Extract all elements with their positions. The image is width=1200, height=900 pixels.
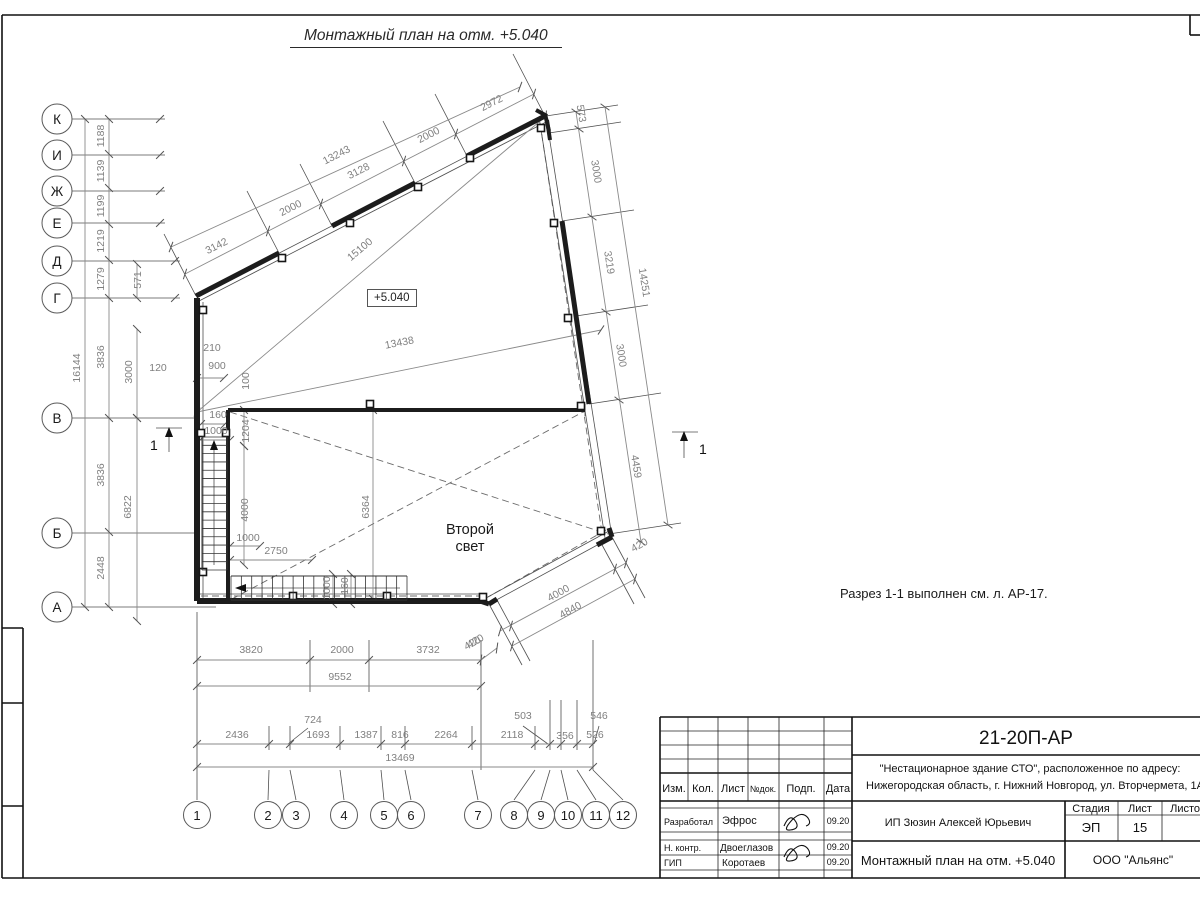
title-block-text: 15 xyxy=(1133,820,1147,835)
column-marker xyxy=(565,315,572,322)
dimension-label: 2000 xyxy=(278,198,304,219)
column-marker xyxy=(415,184,422,191)
dimension-label: 160 xyxy=(339,577,351,595)
center-dashed-line xyxy=(230,412,608,534)
dimension-label: 1000 xyxy=(204,425,228,437)
room-label: Второй свет xyxy=(430,522,510,556)
axis-bubble-number-label: 6 xyxy=(407,808,414,823)
dimension-line xyxy=(197,116,546,412)
title-block-text: Подп. xyxy=(786,783,815,795)
title-block-text: 09.20 xyxy=(827,857,850,867)
dimension-label: 3000 xyxy=(123,360,135,384)
thin-line xyxy=(268,770,269,800)
axis-bubble-letter-label: В xyxy=(52,411,61,426)
title-block-text: 09.20 xyxy=(827,816,850,826)
column-marker xyxy=(467,155,474,162)
dimension-label: 1000 xyxy=(236,532,260,544)
title-block-text: "Нестационарное здание СТО", расположенн… xyxy=(880,763,1181,775)
dimension-label: 2000 xyxy=(416,125,442,146)
title-block-text: Эфрос xyxy=(722,815,757,827)
thin-line xyxy=(523,726,548,744)
dimension-label: 1279 xyxy=(95,267,107,291)
dimension-label: 4840 xyxy=(557,599,583,621)
dim-tick xyxy=(518,82,522,92)
thin-line xyxy=(288,728,308,744)
thin-line xyxy=(609,523,681,534)
dimension-label: 15100 xyxy=(345,236,375,264)
dim-tick xyxy=(633,574,636,585)
arrowhead xyxy=(235,584,246,592)
dimension-label: 2264 xyxy=(434,729,458,741)
signature-scribble xyxy=(784,845,810,861)
title-block-text: Н. контр. xyxy=(664,843,701,853)
title-block-text: Нижегородская область, г. Нижний Новгоро… xyxy=(866,780,1200,792)
column-marker xyxy=(384,593,391,600)
title-block-text: Лист xyxy=(1128,803,1152,815)
dimension-label: 6822 xyxy=(122,495,134,519)
section-mark-label-left: 1 xyxy=(150,437,158,453)
column-marker xyxy=(578,403,585,410)
title-block-text: Разработал xyxy=(664,817,713,827)
wall-segment xyxy=(332,183,415,226)
dimension-label: 1204 xyxy=(240,419,252,443)
title-block-text: Лист xyxy=(721,783,745,795)
dimension-label: 816 xyxy=(391,729,409,741)
column-marker xyxy=(551,220,558,227)
dimension-label: 14251 xyxy=(636,267,652,298)
thin-line xyxy=(497,600,530,661)
axis-bubble-number-label: 8 xyxy=(510,808,517,823)
dimension-label: 3732 xyxy=(416,644,440,656)
arrowhead xyxy=(165,427,173,437)
dimension-label: 2750 xyxy=(264,545,288,557)
dimension-label: 9552 xyxy=(328,671,352,683)
dim-tick xyxy=(624,558,627,569)
axis-bubble-number-label: 11 xyxy=(589,808,603,823)
title-block-text: Дата xyxy=(826,783,851,795)
wall-segment xyxy=(489,599,497,604)
thin-line xyxy=(383,121,415,183)
axis-bubble-number-label: 5 xyxy=(380,808,387,823)
axis-bubble-number-label: 2 xyxy=(264,808,271,823)
column-marker xyxy=(598,528,605,535)
axis-bubble-letter-label: Б xyxy=(53,526,62,541)
thin-line xyxy=(589,393,661,404)
title-block-text: ГИП xyxy=(664,858,682,868)
title-block-text: Двоеглазов xyxy=(720,843,773,854)
dim-tick xyxy=(498,626,501,637)
dimension-label: 13243 xyxy=(321,143,353,167)
thin-line xyxy=(300,164,332,226)
dimension-label: 160 xyxy=(209,409,227,421)
thin-line xyxy=(561,770,568,800)
thin-line xyxy=(577,770,596,800)
axis-bubble-number-label: 3 xyxy=(292,808,299,823)
dimension-label: 3142 xyxy=(204,236,230,257)
dimension-label: 573 xyxy=(574,104,589,123)
thin-line xyxy=(472,770,478,800)
dimension-label: 1139 xyxy=(95,160,107,183)
dimension-line xyxy=(171,87,520,247)
thin-line xyxy=(514,770,535,800)
drawing-title: Монтажный план на отм. +5.040 xyxy=(290,27,562,48)
wall-segment xyxy=(609,528,612,537)
dimension-label: 900 xyxy=(208,360,226,372)
axis-bubble-letter-label: Ж xyxy=(51,184,64,199)
wall-segment xyxy=(597,537,612,545)
dimension-label: 3128 xyxy=(346,161,372,182)
title-block-text: №док. xyxy=(750,784,776,794)
column-marker xyxy=(279,255,286,262)
dimension-label: 2118 xyxy=(501,729,524,741)
thin-line xyxy=(381,770,384,800)
thin-line xyxy=(199,121,548,301)
room-label-line1: Второй xyxy=(430,522,510,539)
dimension-label: 724 xyxy=(304,714,322,726)
axis-bubble-letter-label: Д xyxy=(52,254,61,269)
dimension-label: 420 xyxy=(629,536,650,555)
dimension-label: 1387 xyxy=(354,729,378,741)
dimension-label: 571 xyxy=(132,271,144,289)
axis-bubble-number-label: 1 xyxy=(193,808,200,823)
dimension-label: 2000 xyxy=(330,644,354,656)
dimension-label: 100 xyxy=(240,372,252,390)
dimension-label: 3219 xyxy=(601,250,617,275)
column-marker xyxy=(200,307,207,314)
axis-bubble-letter-label: И xyxy=(52,148,62,163)
dimension-label: 2436 xyxy=(225,729,249,741)
title-block-text: ЭП xyxy=(1082,820,1101,835)
title-block-text: Коротаев xyxy=(722,858,765,869)
elevation-mark: +5.040 xyxy=(367,289,417,307)
wall-segment xyxy=(562,221,589,404)
plan-canvas: КИЖЕДГВБА1234567891011121188113911991219… xyxy=(0,0,1200,900)
title-block-text: Листов xyxy=(1170,803,1200,815)
dimension-label: 1188 xyxy=(95,125,107,148)
dimension-label: 4000 xyxy=(239,498,251,522)
column-marker xyxy=(367,401,374,408)
dimension-label: 120 xyxy=(149,362,167,374)
thin-line xyxy=(290,770,296,800)
column-marker xyxy=(538,125,545,132)
thin-line xyxy=(489,604,522,665)
thin-line xyxy=(576,305,648,316)
thin-line xyxy=(562,210,634,221)
dimension-label: 3000 xyxy=(588,159,604,184)
wall-segment xyxy=(480,601,489,604)
dimension-label: 526 xyxy=(586,729,604,741)
thin-line xyxy=(247,191,279,253)
arrowhead xyxy=(680,431,688,441)
dimension-label: 503 xyxy=(514,710,532,722)
title-block-text: ИП Зюзин Алексей Юрьевич xyxy=(885,817,1032,829)
dimension-label: 3836 xyxy=(95,345,107,369)
axis-bubble-letter-label: Г xyxy=(53,291,61,306)
thin-line xyxy=(340,770,344,800)
title-block-text: Монтажный план на отм. +5.040 xyxy=(861,853,1055,868)
dimension-label: 16144 xyxy=(71,353,83,382)
section-mark-label-right: 1 xyxy=(699,441,707,457)
column-marker xyxy=(347,220,354,227)
dimension-label: 356 xyxy=(556,730,574,742)
dimension-label: 4000 xyxy=(545,582,571,604)
room-label-line2: свет xyxy=(430,539,510,556)
dimension-label: 1693 xyxy=(306,729,330,741)
wall-segment xyxy=(196,253,279,296)
signature-scribble xyxy=(784,814,810,830)
dimension-line xyxy=(576,112,641,542)
drawing-sheet: КИЖЕДГВБА1234567891011121188113911991219… xyxy=(0,0,1200,900)
thin-line xyxy=(405,770,411,800)
axis-bubble-number-label: 4 xyxy=(340,808,347,823)
thin-line xyxy=(541,770,550,800)
dimension-label: 13469 xyxy=(385,752,414,764)
wall-segment xyxy=(547,120,550,140)
dimension-label: 2448 xyxy=(95,556,107,580)
axis-bubble-number-label: 9 xyxy=(537,808,544,823)
title-block-text: Кол. xyxy=(692,783,714,795)
thin-line xyxy=(549,122,621,133)
dimension-label: 3000 xyxy=(613,343,629,368)
dimension-label: 3836 xyxy=(95,463,107,487)
thin-line xyxy=(593,770,623,800)
dimension-label: 3820 xyxy=(239,644,263,656)
column-marker xyxy=(480,594,487,601)
dimension-label: 13438 xyxy=(384,334,415,351)
axis-bubble-number-label: 10 xyxy=(561,808,575,823)
dimension-label: 1199 xyxy=(95,195,107,218)
axis-bubble-number-label: 12 xyxy=(616,808,630,823)
axis-bubble-letter-label: К xyxy=(53,112,61,127)
title-block-text: Изм. xyxy=(662,783,686,795)
title-block-text: 09.20 xyxy=(827,842,850,852)
dimension-line xyxy=(481,648,497,660)
thin-line xyxy=(435,94,467,156)
axis-bubble-letter-label: Е xyxy=(52,216,61,231)
column-marker xyxy=(200,569,207,576)
center-dashed-line xyxy=(232,412,583,599)
thin-line xyxy=(513,54,545,116)
title-block-text: ООО "Альянс" xyxy=(1093,853,1173,867)
axis-bubble-number-label: 7 xyxy=(474,808,481,823)
axis-bubble-letter-label: А xyxy=(52,600,61,615)
dimension-label: 1000 xyxy=(321,576,333,600)
section-note: Разрез 1-1 выполнен см. л. АР-17. xyxy=(840,586,1048,601)
dimension-label: 6364 xyxy=(360,495,372,519)
dimension-label: 546 xyxy=(590,710,608,722)
dimension-label: 210 xyxy=(203,342,221,354)
title-block-text: 21-20П-АР xyxy=(979,728,1073,749)
title-block-text: Стадия xyxy=(1072,803,1110,815)
dimension-label: 1219 xyxy=(95,229,107,253)
dim-tick xyxy=(510,641,513,652)
